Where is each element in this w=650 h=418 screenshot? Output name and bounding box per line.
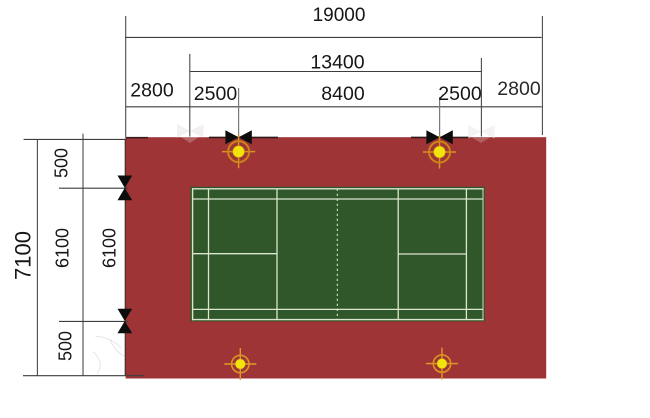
svg-text:2800: 2800	[130, 80, 174, 102]
svg-text:8400: 8400	[321, 83, 365, 105]
svg-text:2500: 2500	[438, 83, 482, 105]
svg-text:6100: 6100	[53, 228, 73, 268]
svg-text:500: 500	[52, 148, 72, 178]
svg-text:2500: 2500	[194, 83, 238, 105]
svg-text:500: 500	[56, 331, 76, 361]
svg-text:13400: 13400	[310, 52, 364, 74]
svg-text:6100: 6100	[100, 228, 120, 268]
svg-text:19000: 19000	[313, 5, 366, 26]
svg-text:2800: 2800	[497, 78, 541, 100]
svg-text:7100: 7100	[11, 231, 36, 280]
